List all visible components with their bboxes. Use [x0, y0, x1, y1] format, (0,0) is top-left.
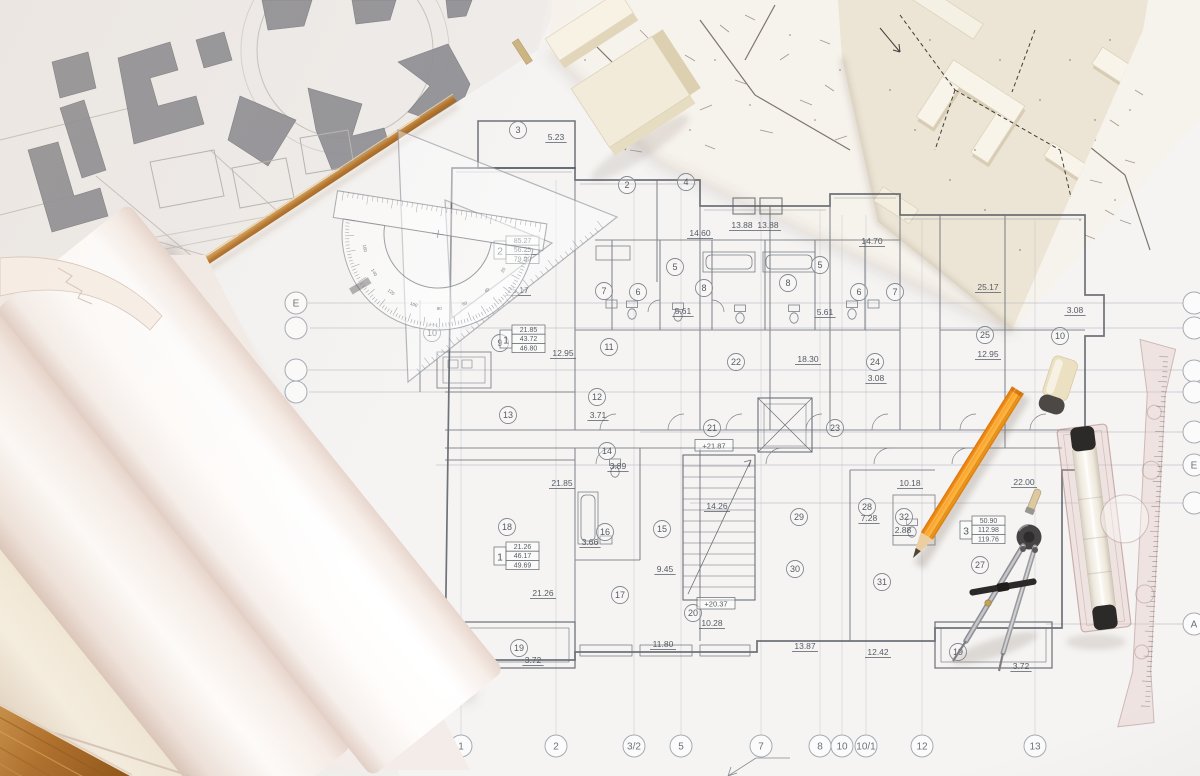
dimension-label: 12.95 — [977, 349, 999, 359]
grid-bubble-label: 13 — [1029, 742, 1041, 753]
room-number: 14 — [602, 446, 612, 456]
table-number: 3 — [963, 526, 969, 538]
room-number: 11 — [604, 342, 613, 352]
grid-bubble-label: 3/2 — [627, 742, 641, 753]
table-row-value: 46.17 — [514, 553, 532, 560]
dimension-label: 5.61 — [675, 306, 692, 316]
grid-bubble-label: 2 — [553, 742, 559, 753]
grid-bubble-label: 5 — [678, 742, 684, 753]
grid-bubble-label: 7 — [758, 742, 764, 753]
grid-bubble-label: 10 — [836, 742, 848, 753]
dimension-label: 3.89 — [610, 461, 627, 471]
room-number: 4 — [683, 177, 688, 187]
level-mark-value: +21.87 — [702, 442, 725, 451]
dimension-label: 13.88 — [757, 220, 779, 230]
room-number: 20 — [688, 608, 698, 618]
grid-bubble — [285, 381, 307, 403]
grid-bubble — [285, 317, 307, 339]
dimension-label: 21.85 — [551, 478, 573, 488]
room-number: 5 — [672, 262, 677, 272]
room-number: 2 — [624, 180, 629, 190]
grid-bubble — [1183, 421, 1200, 443]
level-mark-value: +20.37 — [704, 600, 727, 609]
dimension-label: 12.42 — [867, 647, 889, 657]
dimension-label: 18.30 — [797, 354, 819, 364]
dimension-label: 9.45 — [657, 564, 674, 574]
room-number: 13 — [503, 410, 513, 420]
room-number: 28 — [862, 502, 872, 512]
room-number: 8 — [785, 278, 790, 288]
room-number: 12 — [592, 392, 602, 402]
dimension-label: 5.23 — [548, 132, 565, 142]
grid-bubble-label: 10/1 — [856, 742, 876, 753]
room-number: 27 — [975, 560, 985, 570]
dimension-label: 3.08 — [868, 373, 885, 383]
dimension-label: 25.17 — [977, 282, 999, 292]
dimension-label: 3.72 — [1013, 661, 1030, 671]
grid-bubble-label: 8 — [817, 742, 823, 753]
grid-bubble — [285, 359, 307, 381]
dimension-label: 13.87 — [794, 641, 816, 651]
table-row-value: 50.90 — [980, 518, 998, 525]
room-number: 8 — [701, 283, 706, 293]
room-number: 17 — [615, 590, 625, 600]
room-number: 21 — [707, 423, 717, 433]
dimension-label: 10.18 — [899, 478, 921, 488]
table-row-value: 21.85 — [520, 327, 538, 334]
dimension-label: 14.26 — [706, 501, 728, 511]
dimension-label: 3.71 — [590, 410, 607, 420]
dimension-label: 2.88 — [895, 525, 912, 535]
room-number: 10 — [1055, 331, 1065, 341]
table-row-value: 21.26 — [514, 544, 532, 551]
room-number: 24 — [870, 357, 880, 367]
dimension-label: 7.28 — [861, 513, 878, 523]
grid-bubble — [1183, 317, 1200, 339]
table-number: 1 — [503, 335, 509, 347]
dimension-label: 12.95 — [552, 348, 574, 358]
dimension-label: 13.88 — [731, 220, 753, 230]
table-row-value: 49.69 — [514, 562, 532, 569]
dimension-label: 10.28 — [701, 618, 723, 628]
room-number: 3 — [515, 125, 520, 135]
room-number: 30 — [790, 564, 800, 574]
dimension-label: 3.08 — [1067, 305, 1084, 315]
dimension-label: 11.80 — [653, 639, 674, 649]
room-number: 22 — [731, 357, 741, 367]
protractor-degree-label: 80 — [437, 306, 443, 311]
grid-bubble-label: 12 — [916, 742, 928, 753]
table-row-value: 43.72 — [520, 336, 538, 343]
room-number: 25 — [980, 330, 990, 340]
grid-bubble-label: A — [1191, 620, 1198, 631]
room-number: 32 — [899, 512, 909, 522]
room-number: 7 — [601, 286, 606, 296]
dimension-label: 5.61 — [817, 307, 834, 317]
room-number: 6 — [856, 287, 861, 297]
room-number: 7 — [892, 287, 897, 297]
room-number: 23 — [830, 423, 840, 433]
room-number: 19 — [514, 643, 524, 653]
grid-bubble — [1183, 292, 1200, 314]
room-number: 15 — [657, 524, 667, 534]
table-number: 1 — [497, 552, 503, 564]
dimension-label: 14.70 — [861, 236, 883, 246]
roller-cap — [1070, 425, 1097, 452]
dimension-label: 3.72 — [525, 655, 542, 665]
grid-bubble — [1183, 381, 1200, 403]
grid-bubble-label: E — [1191, 461, 1198, 472]
table-row-value: 46.80 — [520, 345, 538, 352]
room-number: 29 — [794, 512, 804, 522]
dimension-label: 22.00 — [1013, 477, 1035, 487]
room-number: 5 — [817, 260, 822, 270]
dimension-label: 3.66 — [582, 537, 599, 547]
table-row-value: 112.98 — [978, 527, 999, 534]
room-number: 16 — [600, 527, 610, 537]
dimension-label: 14.60 — [689, 228, 711, 238]
grid-bubble — [1183, 360, 1200, 382]
compass-screw — [985, 600, 991, 606]
room-number: 6 — [635, 287, 640, 297]
room-number: 18 — [502, 522, 512, 532]
roller-cap — [1092, 604, 1119, 631]
table-row-value: 119.76 — [978, 536, 999, 543]
dimension-label: 21.26 — [532, 588, 554, 598]
grid-bubble-label: E — [293, 299, 300, 310]
grid-bubble — [1183, 492, 1200, 514]
photo-architectural-blueprints: 123/25781010/11213EEA 324557688671091125… — [0, 0, 1200, 776]
room-number: 31 — [877, 577, 887, 587]
